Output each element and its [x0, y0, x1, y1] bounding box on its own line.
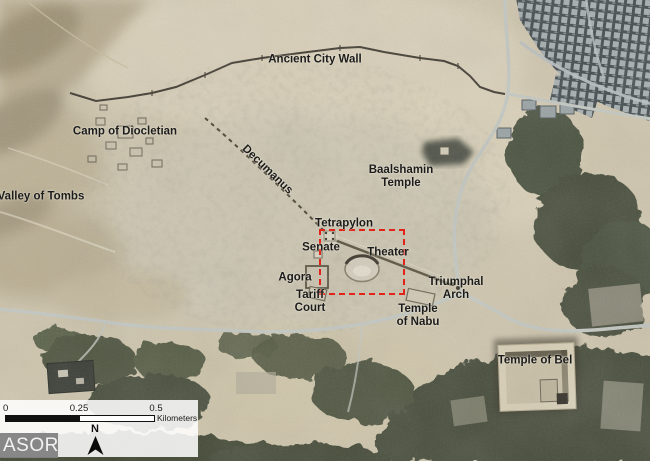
map-label-theater: Theater [367, 247, 409, 260]
asor-logo-text: ASOR [3, 435, 59, 456]
map-label-baalshamin-temple: BaalshaminTemple [369, 164, 434, 190]
scalebar-tick-025: 0.25 [70, 403, 89, 414]
map-label-temple-of-nabu: Templeof Nabu [397, 303, 440, 329]
map-label-temple-of-bel: Temple of Bel [498, 355, 573, 368]
scalebar-segment-empty [80, 416, 154, 421]
north-arrow-icon [87, 436, 104, 455]
north-label: N [85, 424, 105, 435]
map-label-tariff-court: TariffCourt [295, 289, 326, 315]
map-label-camp-of-diocletian: Camp of Diocletian [73, 126, 177, 139]
map-label-triumphal-arch: TriumphalArch [429, 276, 484, 302]
scalebar [5, 415, 155, 422]
map-label-senate: Senate [302, 242, 340, 255]
highlight-box [319, 229, 405, 295]
asor-logo: ASOR [0, 433, 58, 458]
map-label-agora: Agora [278, 272, 311, 285]
north-arrow: N [85, 424, 105, 455]
map-label-ancient-city-wall: Ancient City Wall [268, 54, 362, 67]
map-label-tetrapylon: Tetrapylon [315, 218, 373, 231]
map-label-valley-of-tombs: Valley of Tombs [0, 191, 84, 204]
scalebar-unit: Kilometers [157, 413, 197, 423]
scalebar-tick-0: 0 [3, 403, 8, 414]
scalebar-segment-filled [6, 416, 80, 421]
map-canvas: Ancient City WallCamp of DiocletianValle… [0, 0, 650, 461]
